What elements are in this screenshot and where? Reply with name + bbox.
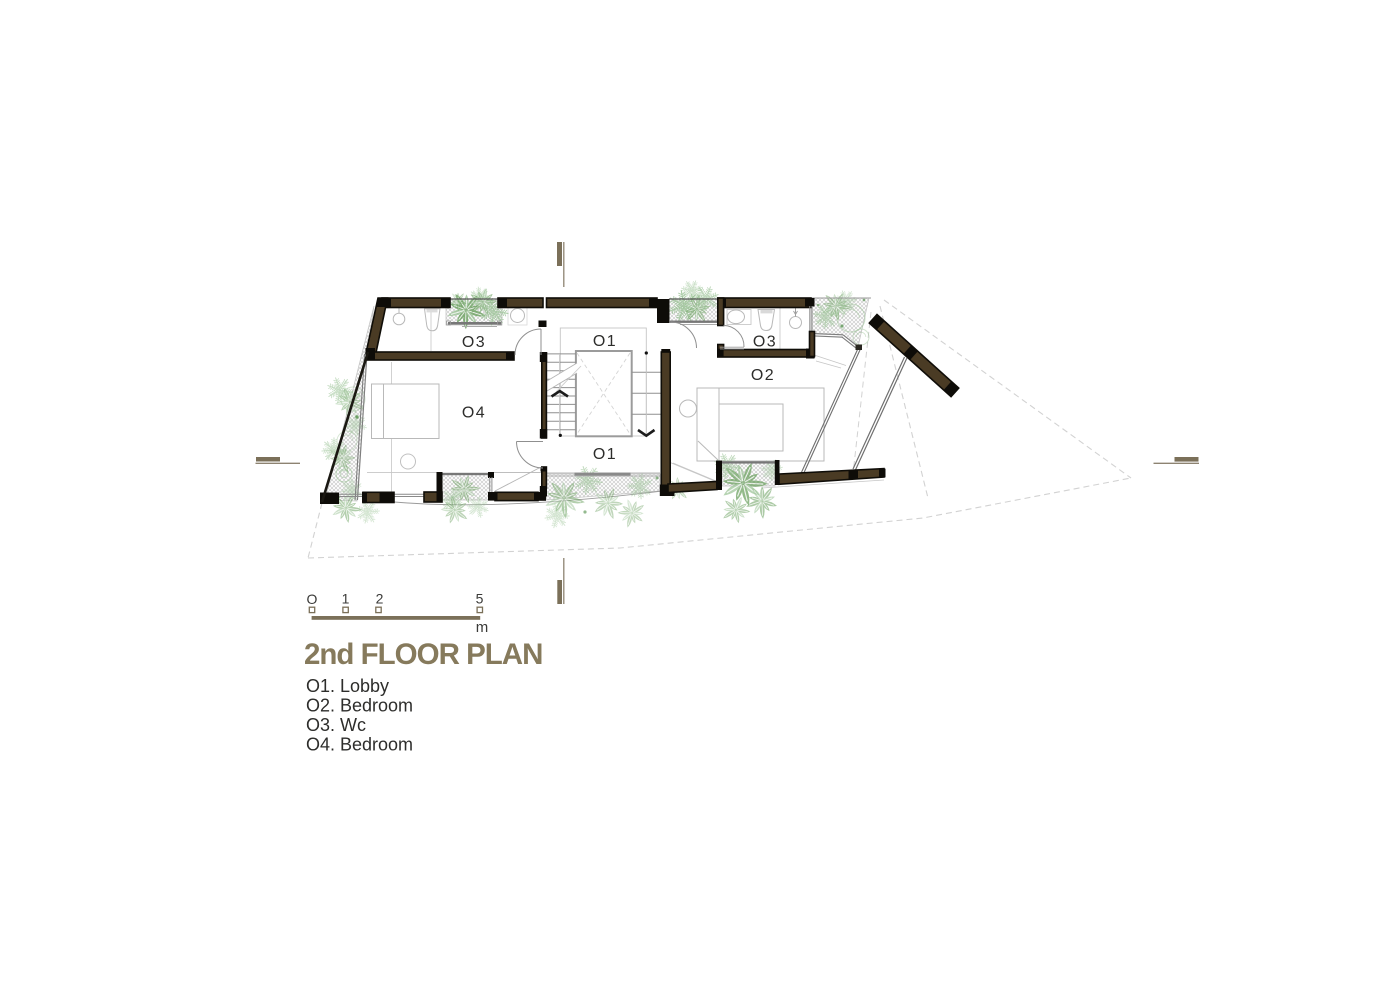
svg-text:O1. Lobby: O1. Lobby <box>306 676 389 696</box>
svg-text:O1: O1 <box>593 333 617 350</box>
svg-text:2: 2 <box>376 591 384 607</box>
svg-text:O4. Bedroom: O4. Bedroom <box>306 735 413 755</box>
svg-text:1: 1 <box>342 591 350 607</box>
svg-text:5: 5 <box>476 591 484 607</box>
svg-text:2nd FLOOR PLAN: 2nd FLOOR PLAN <box>304 638 542 671</box>
svg-text:O: O <box>307 591 318 607</box>
svg-text:O2: O2 <box>751 367 775 384</box>
svg-text:O3: O3 <box>462 334 486 351</box>
svg-text:m: m <box>476 619 489 636</box>
svg-text:O3. Wc: O3. Wc <box>306 715 366 735</box>
svg-text:O3: O3 <box>753 334 777 351</box>
svg-text:O2. Bedroom: O2. Bedroom <box>306 696 413 716</box>
svg-text:O1: O1 <box>593 446 617 463</box>
svg-text:O4: O4 <box>462 405 486 422</box>
